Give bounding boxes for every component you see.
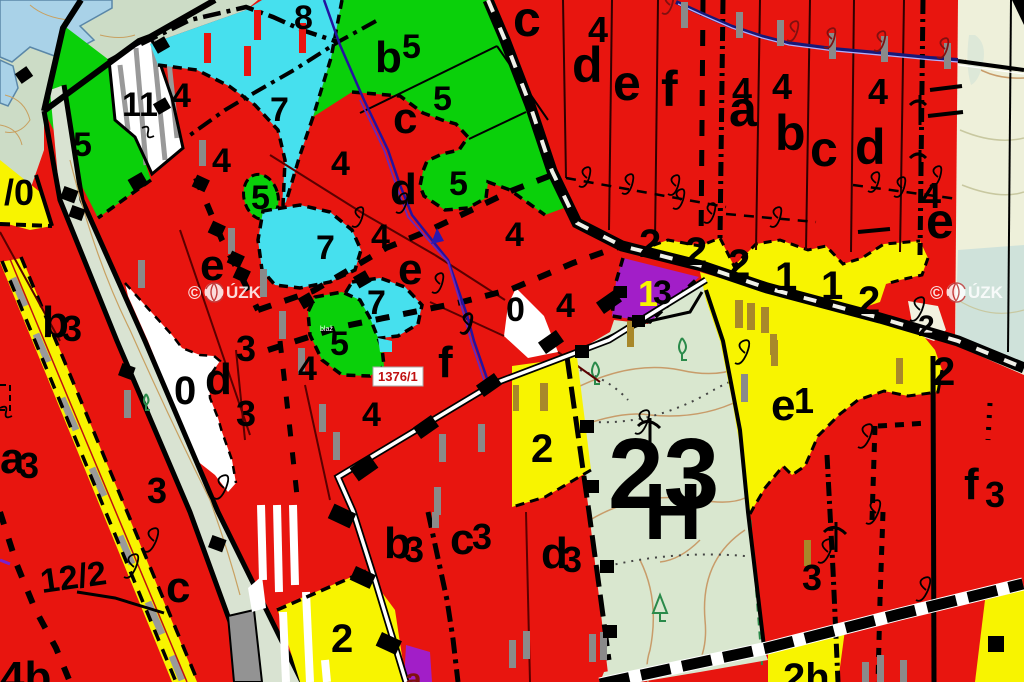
svg-text:2: 2 bbox=[639, 222, 661, 266]
svg-text:8: 8 bbox=[294, 0, 313, 37]
svg-text:0: 0 bbox=[174, 369, 196, 413]
svg-text:3: 3 bbox=[653, 274, 672, 312]
svg-text:3: 3 bbox=[147, 470, 167, 511]
svg-text:3: 3 bbox=[236, 393, 256, 434]
svg-text:b: b bbox=[775, 105, 806, 161]
svg-text:2: 2 bbox=[728, 242, 750, 286]
svg-text:2: 2 bbox=[918, 310, 935, 343]
svg-text:7: 7 bbox=[367, 284, 386, 322]
svg-text:1: 1 bbox=[794, 380, 814, 421]
svg-text:0: 0 bbox=[506, 291, 525, 329]
svg-text:2h: 2h bbox=[783, 656, 830, 682]
svg-text:d: d bbox=[205, 355, 232, 404]
svg-text:3: 3 bbox=[236, 328, 256, 369]
svg-text:d: d bbox=[390, 165, 417, 214]
svg-text:4: 4 bbox=[505, 216, 524, 254]
svg-text:c: c bbox=[166, 563, 190, 612]
svg-text:c: c bbox=[450, 515, 474, 564]
svg-text:3: 3 bbox=[562, 539, 582, 580]
svg-text:4: 4 bbox=[298, 350, 317, 388]
svg-text:5: 5 bbox=[73, 126, 92, 164]
svg-text:©: © bbox=[930, 283, 943, 303]
svg-text:4: 4 bbox=[371, 218, 390, 256]
svg-text:f: f bbox=[661, 61, 678, 117]
svg-text:3: 3 bbox=[404, 529, 424, 570]
svg-text:4b: 4b bbox=[0, 653, 51, 682]
svg-text:1: 1 bbox=[775, 255, 797, 299]
svg-text:d: d bbox=[855, 119, 886, 175]
svg-text:blaž: blaž bbox=[320, 326, 333, 333]
svg-text:2: 2 bbox=[933, 350, 955, 394]
svg-text:5: 5 bbox=[251, 179, 270, 217]
svg-text:c: c bbox=[810, 121, 838, 177]
svg-text:7: 7 bbox=[316, 229, 335, 267]
svg-text:3: 3 bbox=[802, 557, 822, 598]
svg-text:©: © bbox=[188, 283, 201, 303]
svg-text:c: c bbox=[393, 94, 417, 143]
svg-text:4: 4 bbox=[868, 71, 888, 112]
svg-text:2: 2 bbox=[858, 279, 880, 323]
svg-text:ÚZK: ÚZK bbox=[226, 283, 262, 302]
svg-text:f: f bbox=[964, 460, 979, 509]
svg-text:4: 4 bbox=[212, 142, 231, 180]
svg-text:1376/1: 1376/1 bbox=[378, 369, 418, 384]
svg-text:2: 2 bbox=[331, 617, 353, 661]
svg-text:4: 4 bbox=[732, 70, 752, 111]
svg-text:f: f bbox=[438, 338, 453, 387]
svg-text:b: b bbox=[375, 33, 402, 82]
svg-text:e: e bbox=[613, 55, 641, 111]
svg-text:4: 4 bbox=[331, 145, 350, 183]
svg-text:11: 11 bbox=[122, 86, 158, 124]
svg-text:4: 4 bbox=[588, 9, 608, 50]
svg-text:4: 4 bbox=[172, 77, 191, 115]
svg-text:c: c bbox=[513, 0, 541, 47]
svg-text:5: 5 bbox=[449, 165, 468, 203]
svg-text:2: 2 bbox=[685, 230, 707, 274]
svg-text:4: 4 bbox=[556, 287, 575, 325]
svg-text:3: 3 bbox=[472, 516, 492, 557]
svg-text:a: a bbox=[405, 663, 422, 682]
svg-text:5: 5 bbox=[402, 28, 421, 66]
svg-text:e: e bbox=[771, 381, 795, 430]
svg-text:7: 7 bbox=[270, 91, 289, 129]
svg-text:3: 3 bbox=[19, 445, 39, 486]
svg-text:3: 3 bbox=[62, 308, 82, 349]
svg-text:2: 2 bbox=[531, 427, 553, 471]
svg-text:4: 4 bbox=[921, 175, 941, 216]
svg-text:/0: /0 bbox=[4, 172, 34, 213]
svg-text:ÚZK: ÚZK bbox=[968, 283, 1004, 302]
svg-text:4: 4 bbox=[362, 396, 381, 434]
svg-text:5: 5 bbox=[433, 80, 452, 118]
svg-text:4: 4 bbox=[772, 66, 792, 107]
svg-text:1: 1 bbox=[821, 264, 843, 308]
svg-text:e: e bbox=[398, 245, 422, 294]
svg-text:3: 3 bbox=[985, 474, 1005, 515]
svg-text:H: H bbox=[644, 467, 702, 556]
